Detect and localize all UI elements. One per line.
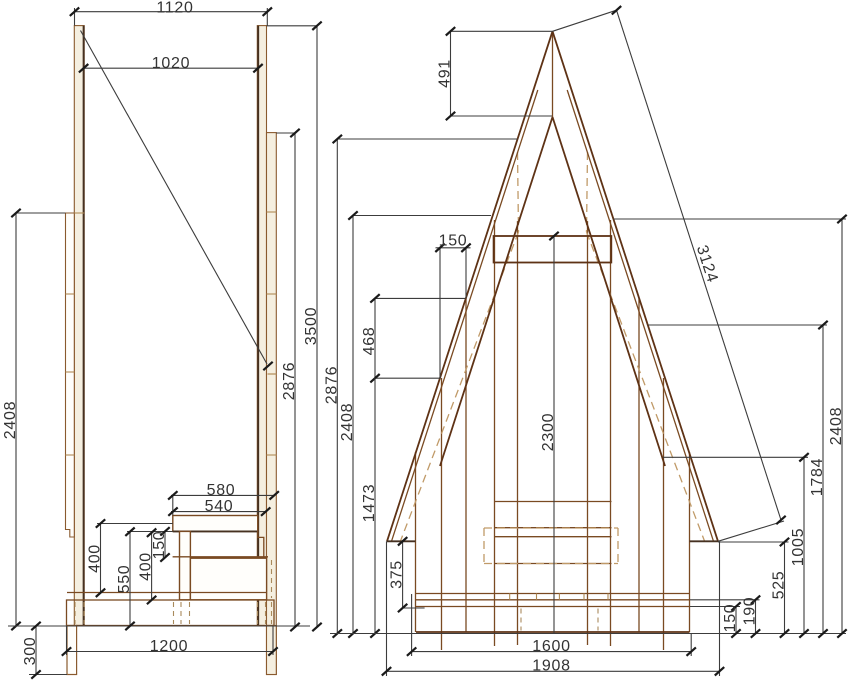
svg-text:150: 150 (151, 531, 168, 560)
svg-text:2876: 2876 (281, 362, 298, 400)
svg-text:525: 525 (771, 571, 788, 600)
svg-text:375: 375 (389, 560, 406, 589)
svg-text:1600: 1600 (532, 638, 570, 655)
svg-text:3500: 3500 (303, 307, 320, 345)
svg-text:2876: 2876 (323, 366, 340, 404)
svg-text:150: 150 (439, 232, 468, 249)
svg-text:2408: 2408 (828, 407, 845, 445)
svg-text:540: 540 (205, 498, 234, 515)
svg-text:2408: 2408 (2, 401, 19, 439)
svg-text:300: 300 (22, 637, 39, 666)
svg-text:190: 190 (742, 597, 759, 626)
svg-text:1020: 1020 (152, 55, 190, 72)
svg-text:468: 468 (361, 327, 378, 356)
svg-text:1473: 1473 (361, 484, 378, 522)
svg-text:2300: 2300 (540, 413, 557, 451)
svg-text:400: 400 (87, 544, 104, 573)
svg-text:580: 580 (207, 482, 236, 499)
svg-text:1784: 1784 (809, 458, 826, 496)
svg-text:150: 150 (722, 604, 739, 633)
svg-text:1120: 1120 (156, 0, 193, 16)
svg-text:2408: 2408 (339, 403, 356, 441)
svg-text:550: 550 (116, 565, 133, 594)
svg-text:1908: 1908 (532, 658, 570, 675)
svg-text:1200: 1200 (150, 638, 188, 655)
svg-text:491: 491 (437, 59, 454, 88)
svg-text:1005: 1005 (790, 528, 807, 566)
